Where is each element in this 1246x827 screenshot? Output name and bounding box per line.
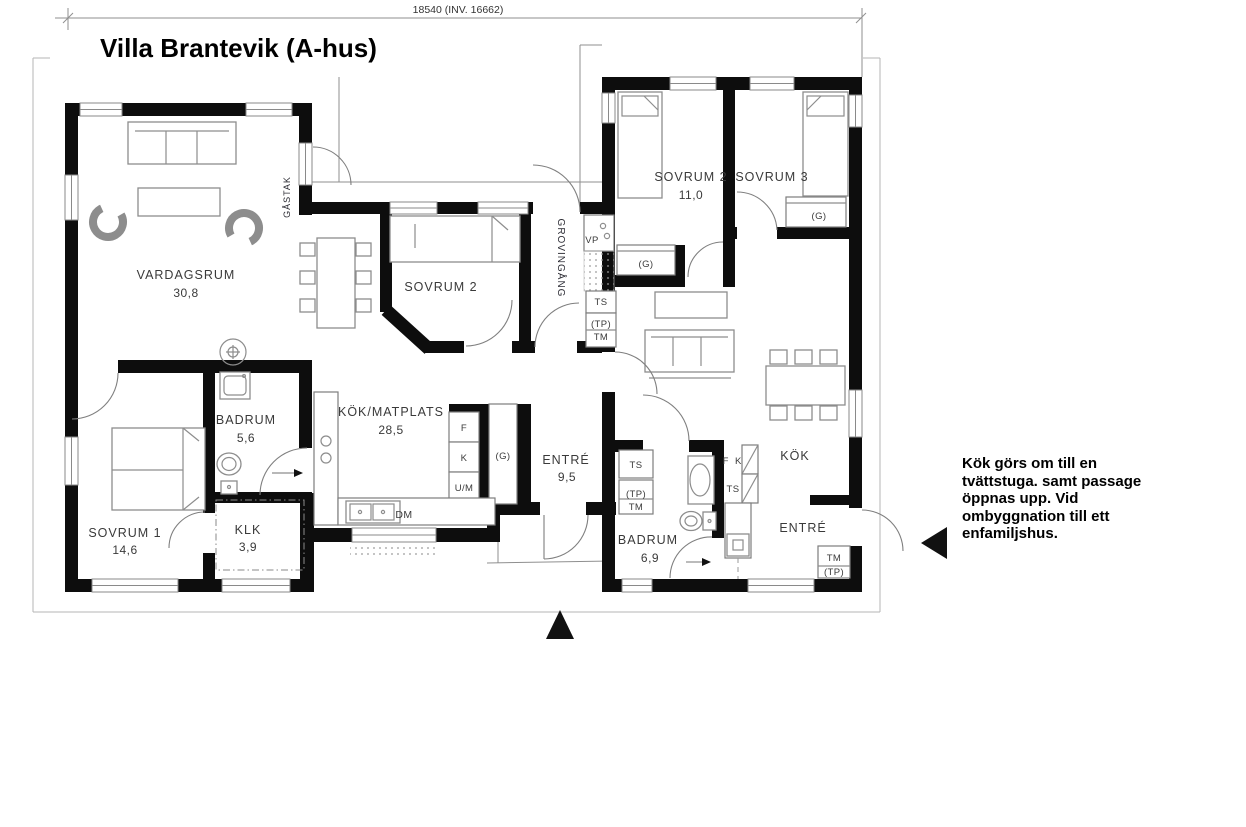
room-label-badrum-right: BADRUM <box>618 533 678 547</box>
label-ts-mid: TS <box>595 297 608 308</box>
window <box>602 93 615 123</box>
kitchen-counter-left <box>314 392 338 525</box>
note-line-5: enfamiljshus. <box>962 525 1058 542</box>
label-grovingang: GROVINGÅNG <box>555 219 568 298</box>
laundry-column <box>725 503 751 579</box>
vanity-right <box>688 456 714 504</box>
annotation-note: Kök görs om till en tvättstuga. samt pas… <box>921 455 1141 559</box>
label-um: U/M <box>455 483 474 494</box>
bed-sovrum3 <box>803 92 848 196</box>
room-label-sovrum1: SOVRUM 1 <box>88 526 161 540</box>
window <box>246 103 292 116</box>
window <box>222 579 290 592</box>
label-dm: DM <box>395 509 412 521</box>
room-label-kok-matplats: KÖK/MATPLATS <box>338 405 444 419</box>
note-arrow-icon <box>921 527 947 559</box>
toilet-left <box>217 453 241 494</box>
label-tm-badrum: TM <box>629 502 644 513</box>
label-vp: VP <box>585 235 598 246</box>
window <box>65 175 78 220</box>
label-g1: (G) <box>639 259 654 270</box>
side-table-right <box>655 292 727 318</box>
kitchen-sink <box>346 501 400 523</box>
label-tp-entre: (TP) <box>824 567 844 578</box>
bed-sovrum2-left <box>390 216 520 262</box>
window <box>849 95 862 127</box>
area-badrum-right: 6,9 <box>641 551 659 565</box>
label-fk: F K <box>723 456 744 467</box>
area-entre-left: 9,5 <box>558 470 576 484</box>
armchair <box>224 208 265 249</box>
window <box>478 202 528 214</box>
room-label-sovrum2-right: SOVRUM 2 <box>654 170 727 184</box>
window <box>92 579 178 592</box>
label-tm-entre: TM <box>827 553 842 564</box>
window <box>750 77 794 90</box>
window <box>350 528 438 555</box>
sofa-left <box>128 122 236 164</box>
dimension-label: 18540 (INV. 16662) <box>413 4 504 16</box>
area-kok-matplats: 28,5 <box>378 423 403 437</box>
window <box>80 103 122 116</box>
bed-sovrum1 <box>112 428 205 510</box>
window <box>670 77 716 90</box>
label-k: K <box>461 453 468 464</box>
label-ts-badrum: TS <box>630 460 643 471</box>
plan-title: Villa Brantevik (A-hus) <box>100 33 377 63</box>
room-label-sovrum3: SOVRUM 3 <box>735 170 808 184</box>
entry-arrow-badrum-left <box>272 469 303 477</box>
room-label-badrum-left: BADRUM <box>216 413 276 427</box>
dining-set-right <box>766 350 845 420</box>
area-badrum-left: 5,6 <box>237 431 255 445</box>
note-line-4: ombyggnation till ett <box>962 508 1110 525</box>
label-ts-laundry: TS <box>727 484 740 495</box>
front-door-left <box>544 515 588 559</box>
area-vardagsrum: 30,8 <box>173 286 198 300</box>
label-tp-mid: (TP) <box>591 319 611 330</box>
sofa-right <box>645 330 734 378</box>
window <box>748 579 814 592</box>
entry-arrow-badrum-right <box>686 558 711 566</box>
floorplan-drawing: 18540 (INV. 16662) <box>0 0 1246 827</box>
window <box>390 202 437 214</box>
dotted-area <box>584 251 614 291</box>
floorplan-page: 18540 (INV. 16662) <box>0 0 1246 827</box>
room-label-sovrum2-left: SOVRUM 2 <box>404 280 477 294</box>
room-label-kok-right: KÖK <box>780 449 809 463</box>
armchair <box>88 202 129 243</box>
bathroom-sink-left <box>220 372 250 399</box>
coffee-table <box>138 188 220 216</box>
area-sovrum1: 14,6 <box>112 543 137 557</box>
label-gastak: GÅSTAK <box>282 176 292 218</box>
note-line-1: Kök görs om till en <box>962 455 1097 472</box>
room-label-klk: KLK <box>235 523 262 537</box>
window <box>849 390 862 437</box>
room-label-entre-left: ENTRÉ <box>542 452 589 467</box>
entrance-marker-icon <box>546 610 574 639</box>
room-label-vardagsrum: VARDAGSRUM <box>137 268 236 282</box>
window <box>299 143 312 185</box>
room-label-entre-right: ENTRÉ <box>779 520 826 535</box>
label-g2: (G) <box>812 211 827 222</box>
dining-set-left <box>300 238 371 328</box>
toilet-right <box>680 512 716 531</box>
label-f: F <box>461 423 467 434</box>
label-g-kitchen: (G) <box>496 451 511 462</box>
area-sovrum2-right: 11,0 <box>679 188 703 202</box>
tall-cabinets <box>742 445 758 503</box>
label-tm-mid: TM <box>594 332 609 343</box>
note-line-2: tvättstuga. samt passage <box>962 473 1141 490</box>
note-line-3: öppnas upp. Vid <box>962 490 1078 507</box>
window <box>622 579 652 592</box>
label-tp-badrum: (TP) <box>626 489 646 500</box>
area-klk: 3,9 <box>239 540 257 554</box>
window <box>65 437 78 485</box>
